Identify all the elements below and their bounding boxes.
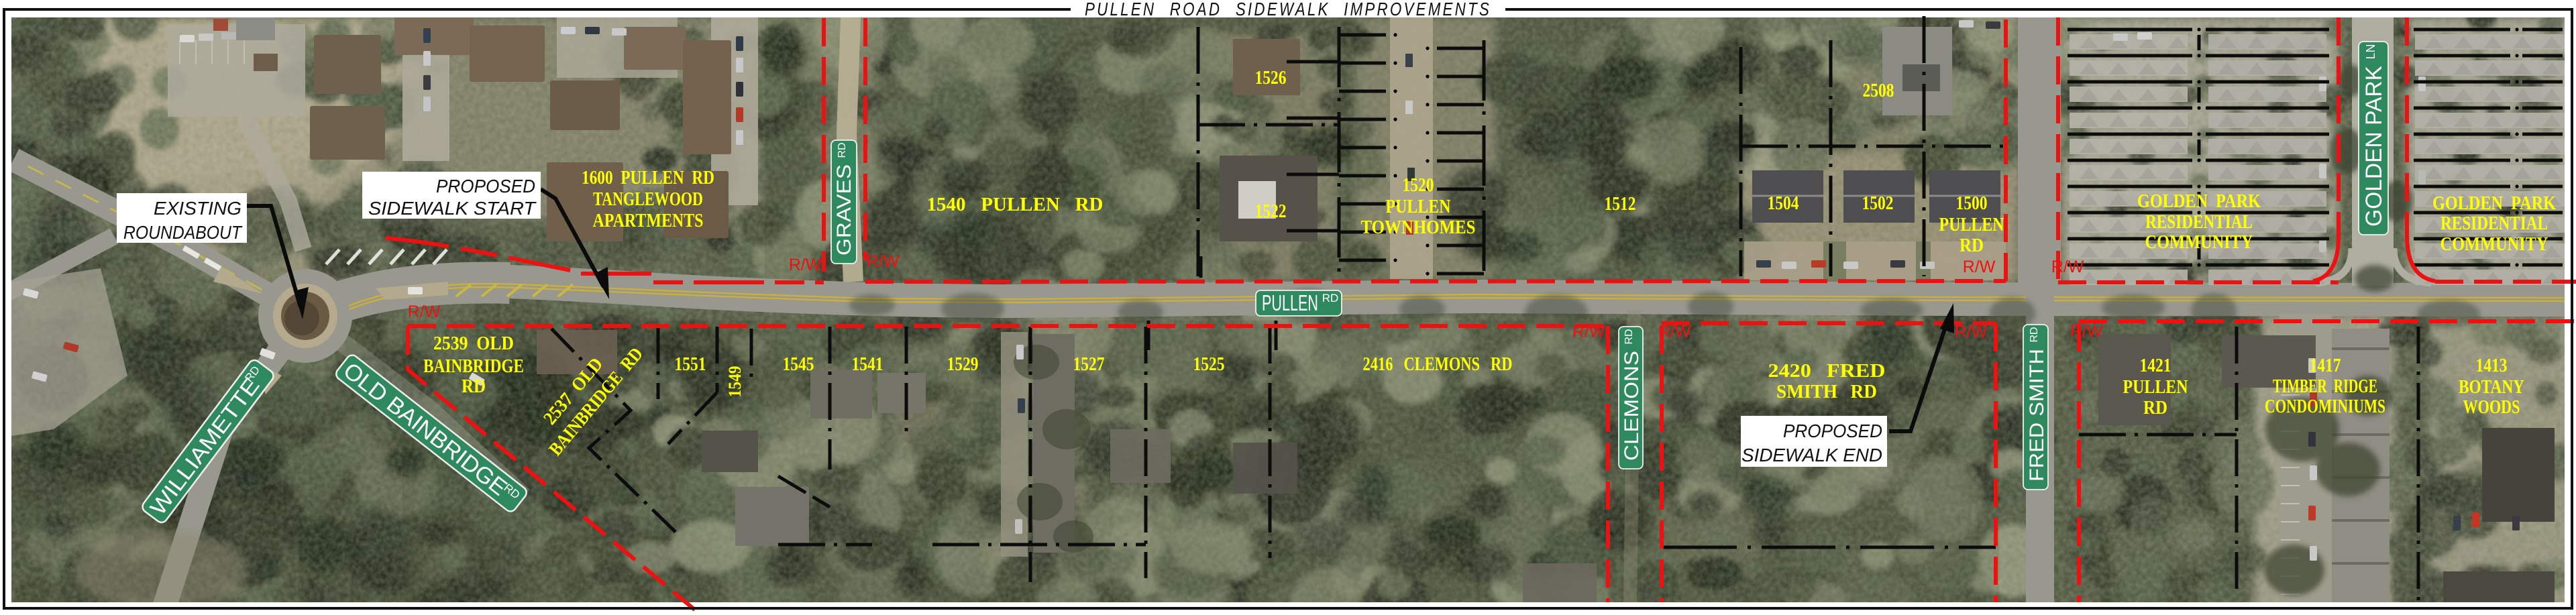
svg-text:TOWNHOMES: TOWNHOMES (1361, 217, 1476, 238)
svg-text:CONDOMINIUMS: CONDOMINIUMS (2265, 396, 2385, 417)
svg-text:1502: 1502 (1862, 193, 1894, 214)
svg-text:PROPOSED: PROPOSED (436, 176, 535, 197)
svg-text:R/W: R/W (789, 256, 822, 274)
svg-text:TANGLEWOOD: TANGLEWOOD (593, 189, 703, 210)
svg-text:GRAVES: GRAVES (833, 164, 855, 256)
svg-text:RD: RD (1623, 329, 1635, 344)
svg-text:R/W: R/W (1963, 258, 1996, 276)
svg-text:PULLEN: PULLEN (1386, 197, 1451, 217)
svg-text:PULLEN: PULLEN (1262, 290, 1318, 315)
svg-text:R/W: R/W (408, 302, 441, 321)
svg-text:1413: 1413 (2476, 355, 2508, 376)
svg-text:RD: RD (2029, 327, 2040, 342)
svg-text:RD: RD (462, 376, 486, 397)
svg-text:1541: 1541 (852, 354, 883, 375)
svg-text:CLEMONS: CLEMONS (1621, 351, 1643, 461)
svg-text:ROUNDABOUT: ROUNDABOUT (123, 222, 243, 243)
svg-text:RD: RD (837, 142, 848, 158)
svg-text:PULLEN ROAD SIDEWALK IMPROVEME: PULLEN ROAD SIDEWALK IMPROVEMENTS (1085, 0, 1491, 19)
svg-text:PULLEN: PULLEN (1939, 215, 2004, 235)
svg-text:APARTMENTS: APARTMENTS (593, 211, 704, 231)
svg-text:RESIDENTIAL: RESIDENTIAL (2440, 213, 2548, 234)
svg-text:SIDEWALK END: SIDEWALK END (1741, 445, 1882, 465)
svg-text:GOLDEN PARK: GOLDEN PARK (2361, 66, 2387, 227)
svg-text:1525: 1525 (1193, 354, 1225, 375)
svg-text:1522: 1522 (1255, 201, 1287, 222)
svg-text:1500: 1500 (1956, 193, 1988, 214)
svg-text:2420 FRED: 2420 FRED (1768, 361, 1886, 382)
svg-text:1549: 1549 (725, 366, 745, 398)
svg-text:1526: 1526 (1255, 68, 1287, 89)
svg-text:WOODS: WOODS (2463, 397, 2520, 418)
svg-text:GOLDEN PARK: GOLDEN PARK (2432, 193, 2556, 214)
svg-text:1540 PULLEN RD: 1540 PULLEN RD (927, 194, 1104, 215)
svg-text:BAINBRIDGE: BAINBRIDGE (423, 356, 524, 377)
svg-text:EXISTING: EXISTING (154, 198, 241, 219)
svg-text:2416 CLEMONS RD: 2416 CLEMONS RD (1363, 354, 1513, 375)
svg-text:1504: 1504 (1768, 193, 1799, 214)
svg-text:RD: RD (1322, 292, 1339, 304)
svg-text:R/W: R/W (2070, 322, 2103, 341)
svg-text:R/W: R/W (1658, 323, 1691, 341)
svg-text:1545: 1545 (783, 354, 814, 375)
svg-text:1520: 1520 (1403, 175, 1434, 196)
svg-text:FRED SMITH: FRED SMITH (2026, 349, 2048, 482)
svg-text:R/W: R/W (1955, 323, 1988, 341)
svg-text:RD: RD (1960, 235, 1984, 256)
svg-text:1527: 1527 (1073, 354, 1105, 375)
svg-text:TIMBER RIDGE: TIMBER RIDGE (2273, 376, 2377, 397)
svg-text:BOTANY: BOTANY (2459, 377, 2524, 398)
svg-text:PULLEN: PULLEN (2123, 377, 2188, 398)
svg-text:1600 PULLEN RD: 1600 PULLEN RD (582, 168, 714, 188)
svg-text:R/W: R/W (2051, 258, 2084, 276)
svg-text:2508: 2508 (1863, 80, 1894, 101)
svg-text:2539 OLD: 2539 OLD (433, 333, 514, 354)
svg-text:1551: 1551 (675, 354, 706, 375)
svg-text:1529: 1529 (947, 354, 979, 375)
svg-text:COMMUNITY: COMMUNITY (2440, 234, 2548, 255)
svg-text:1512: 1512 (1605, 194, 1636, 215)
svg-text:RESIDENTIAL: RESIDENTIAL (2145, 212, 2253, 233)
svg-text:GOLDEN PARK: GOLDEN PARK (2137, 191, 2261, 212)
svg-text:1417: 1417 (2310, 355, 2341, 376)
svg-text:R/W: R/W (1572, 323, 1605, 341)
svg-text:SIDEWALK START: SIDEWALK START (368, 198, 537, 219)
svg-text:RD: RD (2143, 398, 2167, 418)
svg-text:R/W: R/W (867, 252, 900, 271)
svg-text:LN: LN (2364, 44, 2377, 59)
svg-text:1421: 1421 (2140, 355, 2171, 376)
svg-text:COMMUNITY: COMMUNITY (2145, 232, 2253, 253)
svg-text:PROPOSED: PROPOSED (1783, 421, 1882, 441)
svg-text:SMITH RD: SMITH RD (1776, 382, 1877, 402)
